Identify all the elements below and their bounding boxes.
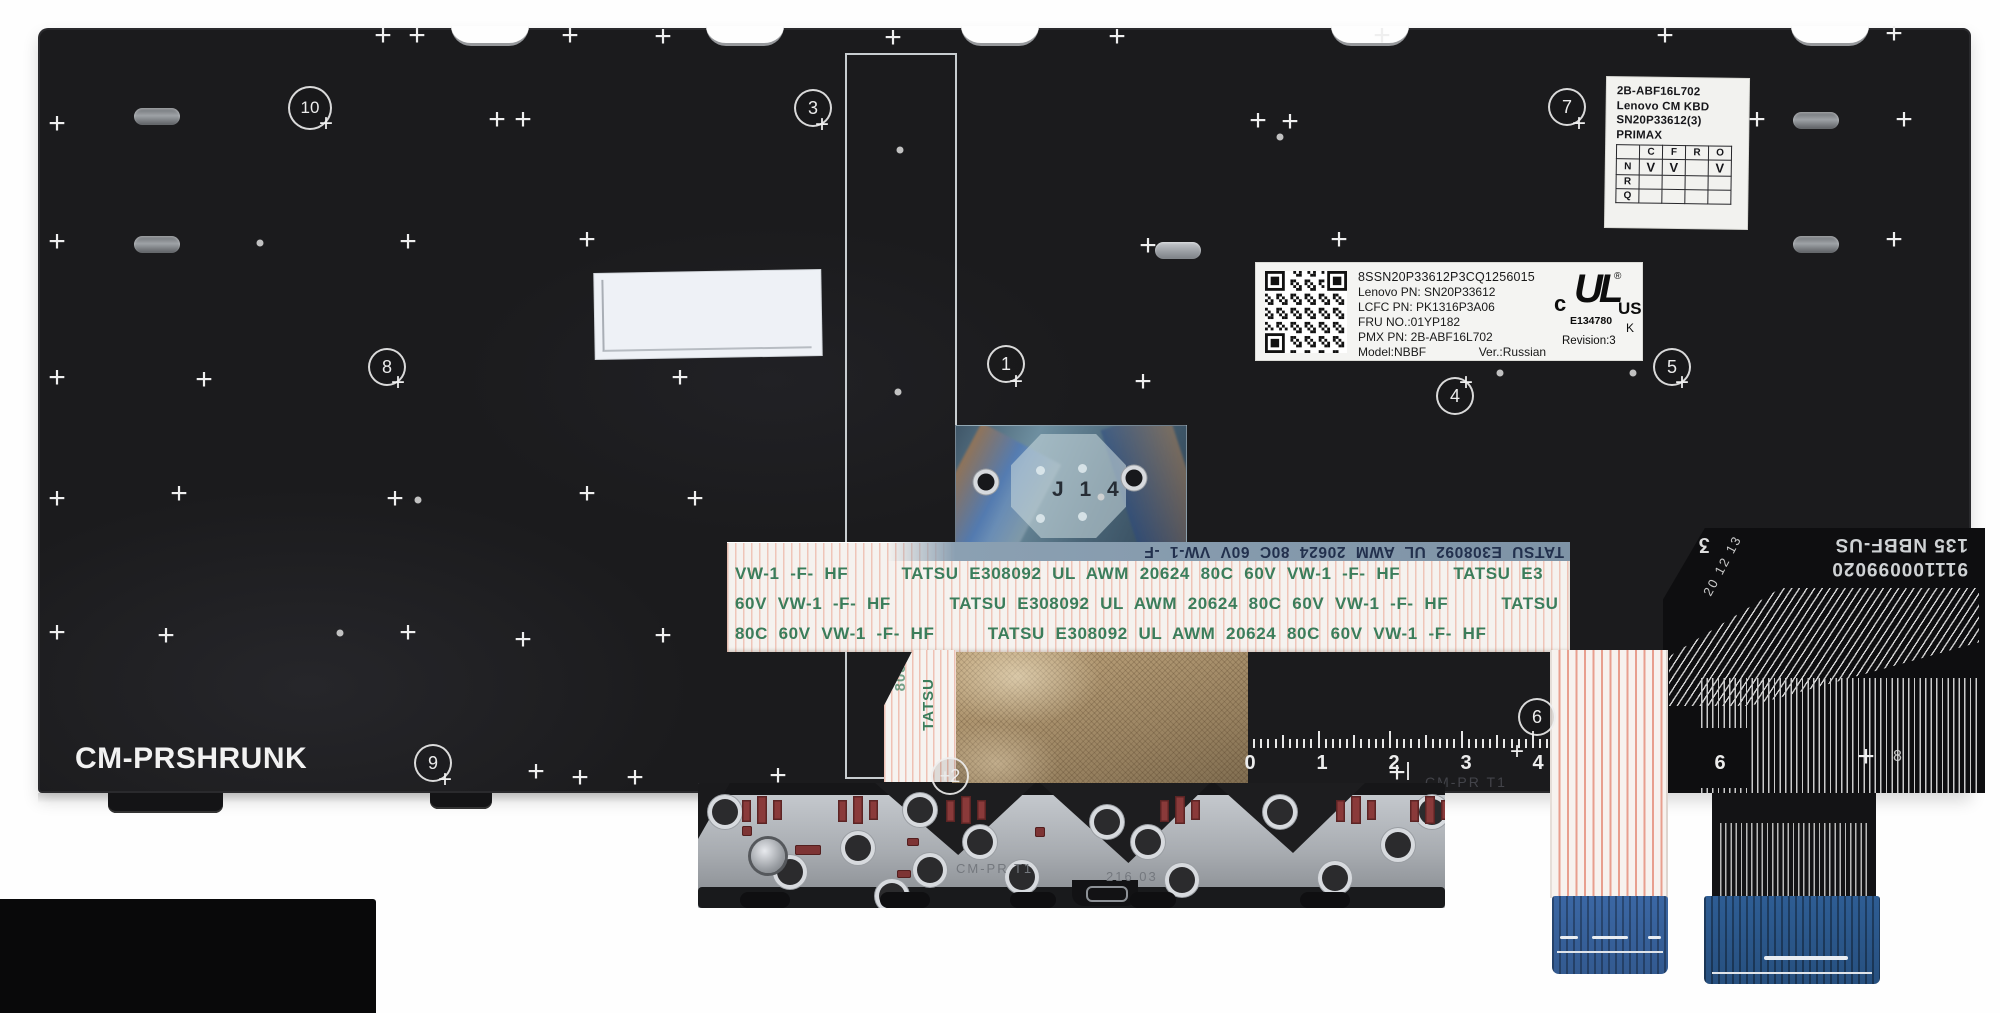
ul-k: K: [1626, 321, 1634, 335]
ruler-tick: [1289, 739, 1291, 748]
ruler-tick: [1539, 739, 1541, 748]
pad-segment: [977, 800, 986, 820]
part-line-1: Lenovo PN: SN20P33612: [1358, 285, 1546, 300]
part-line-2: LCFC PN: PK1316P3A06: [1358, 300, 1546, 315]
trackpoint-rubber-pad: [838, 796, 878, 828]
compat-cell: C: [1639, 145, 1662, 159]
ruler-tick: [1432, 739, 1434, 748]
ribbon-print-row2: 60V VW-1 -F- HF TATSU E308092 UL AWM 206…: [735, 594, 1559, 614]
standoff-slot: [134, 108, 180, 125]
standoff-slot: [1155, 242, 1201, 259]
dome-pip: [1078, 464, 1087, 473]
ruler-tick: [1253, 739, 1255, 748]
bracket-etch-right: 216 03: [1106, 869, 1158, 884]
bracket-bottom-tab: [1010, 892, 1056, 908]
ruler-tick: [1453, 739, 1455, 748]
pad-segment: [838, 800, 847, 822]
ruler-tick: [1382, 739, 1384, 748]
flex-tail-traces: [1720, 823, 1868, 903]
stiffener-edge-line: [1712, 972, 1872, 974]
bracket-etch-left: CM-PR T1: [956, 861, 1033, 876]
ruler-tick: [1396, 739, 1398, 748]
ribbon-print-row1: VW-1 -F- HF TATSU E308092 UL AWM 20624 8…: [735, 564, 1543, 584]
plate-edge-notch: [1791, 26, 1869, 46]
ruler-number-6: 6: [1714, 752, 1725, 775]
ruler-tick: [1468, 739, 1470, 748]
bracket-bottom-tab: [740, 892, 790, 908]
bracket-hole: [917, 857, 943, 883]
compat-cell: [1662, 189, 1685, 203]
bracket-hole: [967, 829, 993, 855]
standoff-slot: [1793, 236, 1839, 253]
flex-maker-logo: ʒ: [1699, 536, 1710, 559]
registration-dot: [1630, 370, 1637, 377]
spec-line-3: SN20P33612(3): [1616, 113, 1742, 129]
ul-us: US: [1618, 299, 1642, 319]
stiffener-contact-mark: [1560, 936, 1578, 939]
ruler-tick: [1418, 739, 1420, 748]
plate-edge-notch: [706, 26, 784, 46]
trackpoint-rubber-pad: [742, 796, 782, 828]
bracket-hole: [1385, 832, 1411, 858]
compat-cell: N: [1616, 159, 1639, 175]
pad-segment: [869, 800, 878, 820]
trackpoint-rubber-pad: [1336, 796, 1376, 828]
bracket-hole: [845, 835, 871, 861]
bracket-hole: [1322, 865, 1348, 891]
compat-cell: [1616, 145, 1639, 159]
ul-file-number: E134780: [1570, 315, 1612, 327]
ruler-tick: [1482, 739, 1484, 748]
ruler-tick: [1410, 739, 1412, 748]
part-line-3: FRU NO.:01YP182: [1358, 315, 1546, 330]
callout-number-2: +2: [931, 757, 969, 795]
copper-mesh-shield: [952, 648, 1248, 792]
ruler-tick: [1339, 739, 1341, 748]
bracket-bottom-tab: [1300, 892, 1350, 908]
qr-code: [1265, 271, 1347, 353]
pad-segment: [961, 796, 971, 824]
compat-cell: [1662, 175, 1685, 189]
ruler-tick: [1446, 739, 1448, 748]
ruler-tick: [1439, 739, 1441, 748]
pad-segment: [1336, 800, 1345, 822]
ruler-tick: [1275, 739, 1277, 748]
ruler-tick: [1546, 739, 1548, 748]
part-version: Ver.:Russian: [1479, 345, 1546, 359]
ruler-tick: [1332, 739, 1334, 748]
ruler-tick: [1425, 735, 1427, 748]
flex-circuit-panel: 911100099020 135 NBBF-US 20 12 13 ʒ: [1663, 528, 1985, 793]
rubber-bit: [907, 838, 919, 846]
screw-hole: [1126, 470, 1143, 487]
ruler-tick: [1310, 739, 1312, 748]
pad-segment: [1441, 800, 1445, 820]
ruler-index-bar: [1407, 762, 1409, 780]
pad-segment: [1191, 800, 1200, 820]
bottom-left-black-rect: [0, 899, 376, 1013]
stiffener-contact-mark: [1592, 936, 1628, 939]
ruler-number-3: 3: [1460, 752, 1471, 775]
pad-segment: [1351, 796, 1361, 824]
flex-tail-cable: [1712, 793, 1876, 903]
pad-segment: [1160, 800, 1169, 822]
bracket-hole: [712, 799, 738, 825]
part-line-4: PMX PN: 2B-ABF16L702: [1358, 330, 1546, 345]
ruler-tick: [1503, 739, 1505, 748]
compat-cell: [1639, 175, 1662, 189]
ruler-tick: [1489, 739, 1491, 748]
plate-marking-text: CM-PRSHRUNK: [75, 742, 307, 776]
ruler-tick: [1375, 739, 1377, 748]
flex-digit: 8: [1893, 748, 1902, 766]
pad-segment: [742, 800, 751, 822]
ruler-tick: [1368, 739, 1370, 748]
ruler-tick: [1353, 735, 1355, 748]
ruler-tick: [1267, 739, 1269, 748]
ruler-tick: [1475, 739, 1477, 748]
registration-dot: [897, 147, 904, 154]
pad-segment: [773, 800, 782, 820]
stiffener-contact-mark: [1764, 956, 1848, 960]
ruler-tick: [1260, 739, 1262, 748]
part-model: Model:NBBF: [1358, 345, 1426, 359]
registration-dot: [257, 240, 264, 247]
ruler-tick: [1303, 739, 1305, 748]
registration-dot: [1098, 494, 1105, 501]
compat-cell: [1685, 176, 1708, 190]
ruler-tick: [1496, 735, 1498, 748]
standoff-slot: [1793, 112, 1839, 129]
ruler-number-0: 0: [1244, 752, 1255, 775]
trackpoint-film: J 1 4: [955, 425, 1187, 547]
ruler-tick: [1525, 739, 1527, 748]
spec-line-1: 2B-ABF16L702: [1617, 84, 1743, 100]
compat-cell: [1708, 190, 1731, 204]
compat-cell: R: [1685, 146, 1708, 160]
pad-segment: [853, 796, 863, 824]
dome-pip: [1036, 514, 1045, 523]
ribbon-fold-text: TATSU: [920, 678, 937, 731]
spec-line-4: PRIMAX: [1616, 128, 1742, 144]
part-number-label: 8SSN20P33612P3CQ1256015 Lenovo PN: SN20P…: [1256, 263, 1642, 360]
bracket-hole: [1094, 809, 1120, 835]
dome-pip: [1036, 466, 1045, 475]
rubber-bit: [1035, 827, 1045, 837]
registration-dot: [1277, 134, 1284, 141]
bracket-bottom-tab: [1130, 892, 1176, 908]
compat-cell: O: [1708, 146, 1731, 160]
trackpoint-rubber-pad: [1410, 796, 1445, 828]
ul-certification-mark: UL ® c US E134780 K Revision:3: [1552, 269, 1638, 353]
plate-bottom-tab: [430, 793, 492, 809]
bracket-center-hole: [1086, 886, 1128, 902]
ruler-tick: [1346, 739, 1348, 748]
bracket-hole: [1169, 867, 1195, 893]
standoff-slot: [134, 236, 180, 253]
bracket-hole: [1135, 829, 1161, 855]
pad-segment: [757, 796, 767, 824]
bracket-screw: [751, 839, 785, 873]
ruler-tick: [1360, 739, 1362, 748]
film-label: J 1 4: [1052, 478, 1124, 502]
compat-cell: [1685, 160, 1708, 176]
ruler-number-2: 2: [1388, 752, 1399, 775]
bracket-hole: [907, 797, 933, 823]
pad-segment: [1410, 800, 1419, 822]
pad-segment: [946, 800, 955, 822]
registration-dot: [1497, 370, 1504, 377]
pad-segment: [1175, 796, 1185, 824]
compat-cell: Q: [1616, 189, 1639, 203]
bracket-hole: [1267, 799, 1293, 825]
compat-cell: [1685, 190, 1708, 204]
screw-hole: [978, 474, 995, 491]
pad-segment: [1425, 796, 1435, 824]
plate-edge-notch: [451, 26, 529, 46]
ruler-tick: [1403, 739, 1405, 748]
dome-pip: [1078, 512, 1087, 521]
stiffener-edge-line: [1557, 951, 1663, 953]
registration-dot: [895, 389, 902, 396]
ruler-number-4: 4: [1532, 752, 1543, 775]
connector-stiffener-left: [1552, 896, 1668, 974]
rubber-bit: [795, 845, 821, 855]
ruler-tick: [1282, 735, 1284, 748]
photo-canvas: CM-PRSHRUNK CM-PR T1 2B-ABF16L702 Lenovo…: [0, 0, 2000, 1013]
callout-number-6: 6: [1518, 698, 1556, 736]
compat-cell: R: [1616, 175, 1639, 189]
ribbon-print-row3: 80C 60V VW-1 -F- HF TATSU E308092 UL AWM…: [735, 624, 1487, 644]
rubber-bit: [742, 826, 752, 836]
part-label-text: 8SSN20P33612P3CQ1256015 Lenovo PN: SN20P…: [1358, 270, 1546, 360]
keyboard-ribbon-cable: TATSU E308092 UL AWM 20624 80C 60V VW-1 …: [727, 542, 1570, 652]
ribbon-mirror-text: TATSU E308092 UL AWM 20624 80C 60V VW-1 …: [887, 542, 1570, 560]
blank-label: [594, 270, 821, 359]
ruler-tick: [1318, 731, 1320, 748]
part-model-row: Model:NBBF Ver.:Russian: [1358, 345, 1546, 360]
plate-edge-notch: [1331, 26, 1409, 46]
part-code: 8SSN20P33612P3CQ1256015: [1358, 270, 1546, 285]
compat-cell: F: [1662, 145, 1685, 159]
registration-dot: [337, 630, 344, 637]
connector-stiffener-right: [1704, 896, 1880, 984]
compat-cell: V: [1662, 159, 1685, 175]
spec-label: 2B-ABF16L702 Lenovo CM KBD SN20P33612(3)…: [1605, 77, 1749, 229]
registered-icon: ®: [1614, 271, 1621, 282]
blank-label-crease: [601, 276, 811, 352]
bracket-bottom-tab: [880, 892, 930, 908]
ruler-tick: [1296, 739, 1298, 748]
compat-cell: V: [1708, 160, 1731, 176]
trackpoint-rubber-pad: [946, 796, 986, 828]
compat-cell: [1639, 189, 1662, 203]
mouse-button-bracket: CM-PR T1 216 03: [698, 783, 1445, 908]
ribbon-folded-edge: TATSU E308092 UL AWM 20624 80C 60V VW-1 …: [887, 542, 1570, 561]
plate-edge-notch: [961, 26, 1039, 46]
compat-cell: [1708, 176, 1731, 190]
ruler-tick: [1461, 731, 1463, 748]
compat-cell: V: [1639, 159, 1662, 175]
ul-c: c: [1554, 291, 1566, 317]
ruler-number-1: 1: [1316, 752, 1327, 775]
pad-segment: [1367, 800, 1376, 820]
flex-model: 135 NBBF-US: [1763, 532, 1968, 556]
stiffener-contact-mark: [1648, 936, 1661, 939]
plate-bottom-tab: [108, 793, 223, 813]
compatibility-table: CFRONVVVRQ: [1615, 144, 1732, 205]
registration-dot: [415, 497, 422, 504]
ruler-tick: [1389, 731, 1391, 748]
ul-logo: UL: [1574, 267, 1619, 312]
trackpoint-rubber-pad: [1160, 796, 1200, 828]
revision: Revision:3: [1562, 335, 1616, 347]
flex-serial: 911100099020: [1763, 556, 1968, 580]
ruler-tick: [1325, 739, 1327, 748]
rubber-bit: [897, 870, 911, 878]
flex-serial-block: 911100099020 135 NBBF-US: [1763, 532, 1968, 580]
pink-ffc-cable: [1550, 650, 1668, 898]
